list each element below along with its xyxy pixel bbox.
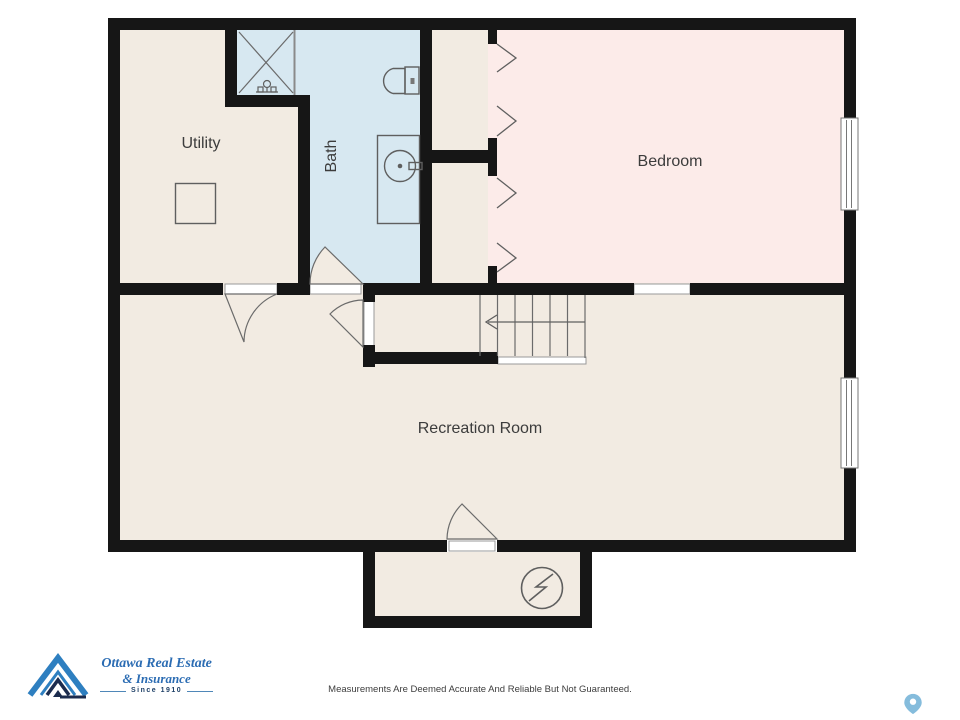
stair-landing-door-opening bbox=[364, 301, 374, 346]
toilet-flush-button bbox=[411, 78, 415, 84]
bath-door-opening bbox=[310, 284, 361, 294]
floor-plan-drawing: Utility Bath Bedroom Recreation Room bbox=[0, 0, 960, 720]
stair-open-rail bbox=[498, 357, 586, 364]
label-bath: Bath bbox=[323, 140, 340, 173]
utility-door-opening bbox=[225, 284, 277, 294]
bumpout-door-opening bbox=[449, 541, 495, 551]
bedroom-window bbox=[841, 118, 858, 210]
bedroom-opening bbox=[634, 284, 690, 294]
map-pin-icon bbox=[902, 692, 924, 716]
disclaimer-text: Measurements Are Deemed Accurate And Rel… bbox=[0, 684, 960, 695]
label-recreation: Recreation Room bbox=[418, 420, 543, 437]
label-bedroom: Bedroom bbox=[638, 153, 703, 170]
brand-name-line1: Ottawa Real Estate bbox=[101, 657, 211, 672]
floor-plan-page: Utility Bath Bedroom Recreation Room Ott… bbox=[0, 0, 960, 720]
recreation-window bbox=[841, 378, 858, 468]
label-utility: Utility bbox=[181, 135, 220, 152]
